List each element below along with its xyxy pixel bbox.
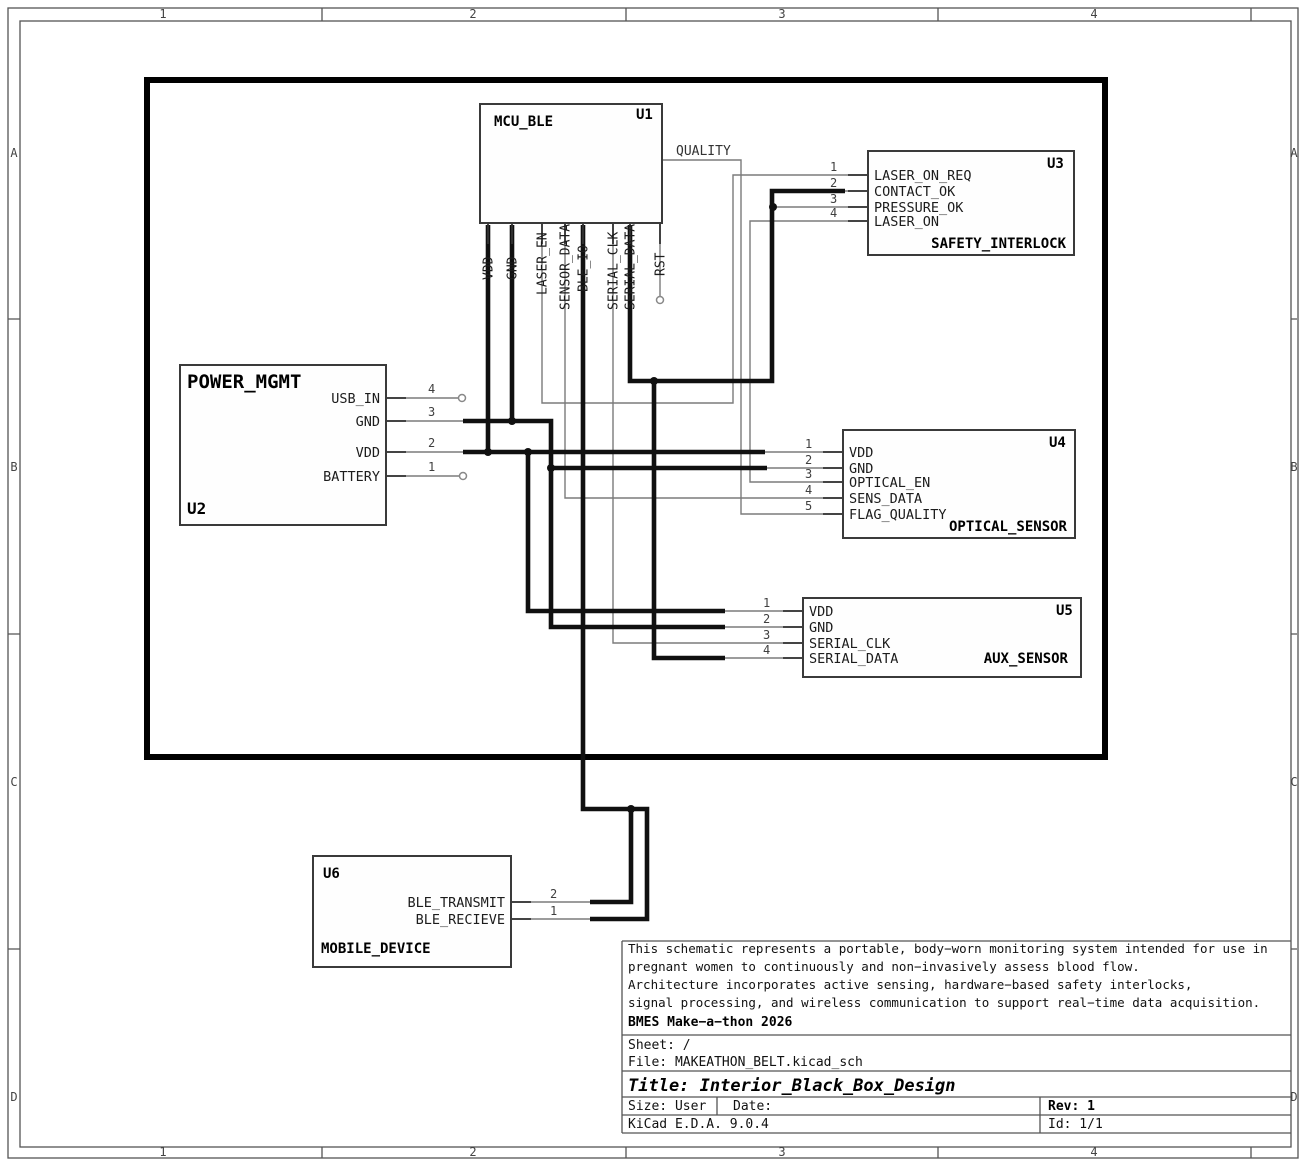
frame-col-label: 1	[159, 1145, 166, 1159]
pin-label-vdd: VDD	[809, 604, 833, 620]
pin-label-serial-data: SERIAL_DATA	[809, 651, 898, 667]
pin-label-vdd: VDD	[849, 445, 873, 461]
component-value: AUX_SENSOR	[984, 651, 1069, 667]
comment-line: Architecture incorporates active sensing…	[628, 977, 1192, 992]
pin-label-ble-io: BLE_IO	[577, 245, 592, 292]
rev-field: Rev: 1	[1048, 1099, 1095, 1114]
pin-label-usb-in: USB_IN	[331, 391, 380, 407]
pin-label-sens-data: SENS_DATA	[849, 491, 922, 507]
frame-row-label: D	[10, 1090, 17, 1104]
frame-col-label: 4	[1090, 7, 1097, 21]
pin-number: 2	[830, 176, 837, 190]
pin-number: 2	[763, 612, 770, 626]
pin-number: 3	[805, 467, 812, 481]
frame-row-label: C	[1290, 775, 1297, 789]
component-value: MCU_BLE	[494, 114, 553, 130]
pin-number: 4	[763, 643, 770, 657]
title-block: This schematic represents a portable, bo…	[622, 941, 1291, 1133]
pin-number: 1	[805, 437, 812, 451]
kicad-schematic-sheet: 1 2 3 4 1 2 3 4 A B C D A B C D	[0, 0, 1305, 1167]
frame-col-label: 3	[778, 1145, 785, 1159]
frame-row-label: B	[10, 460, 17, 474]
frame-col-label: 3	[778, 7, 785, 21]
tool-field: KiCad E.D.A. 9.0.4	[628, 1117, 769, 1132]
component-ref: U1	[636, 107, 653, 123]
comment-line: signal processing, and wireless communic…	[628, 995, 1260, 1010]
pin-number: 4	[830, 206, 837, 220]
sheet-field: Sheet: /	[628, 1038, 691, 1053]
frame-col-label: 2	[469, 1145, 476, 1159]
pin-number: 3	[428, 405, 435, 419]
pin-label-optical-en: OPTICAL_EN	[849, 475, 930, 491]
size-field: Size: User	[628, 1099, 706, 1114]
pin-label-vdd: VDD	[356, 445, 380, 461]
component-u5-aux-sensor: U5 AUX_SENSOR VDD GND SERIAL_CLK SERIAL_…	[763, 596, 1081, 677]
frame-col-label: 4	[1090, 1145, 1097, 1159]
pin-label-ble-recieve: BLE_RECIEVE	[416, 912, 505, 928]
pin-number: 2	[428, 436, 435, 450]
component-ref: U2	[187, 499, 206, 518]
file-field: File: MAKEATHON_BELT.kicad_sch	[628, 1055, 863, 1070]
component-u4-optical-sensor: U4 OPTICAL_SENSOR VDD GND OPTICAL_EN SEN…	[805, 430, 1075, 538]
pin-label-vdd: VDD	[482, 256, 497, 280]
no-connect-battery	[460, 473, 467, 480]
frame-row-label: A	[1290, 146, 1298, 160]
wire-ble-net	[583, 225, 647, 919]
pin-label-serial-data: SERIAL_DATA	[624, 224, 639, 310]
pin-number: 4	[805, 483, 812, 497]
wire-u4-stubs	[765, 452, 843, 468]
project-name: BMES Make−a−thon 2026	[628, 1015, 793, 1030]
wire-serial-clk	[613, 223, 803, 643]
component-u3-safety-interlock: U3 SAFETY_INTERLOCK LASER_ON_REQ CONTACT…	[830, 151, 1074, 255]
date-field: Date:	[733, 1099, 772, 1114]
frame-col-label: 1	[159, 7, 166, 21]
title-field: Title: Interior_Black_Box_Design	[628, 1076, 956, 1096]
frame-col-label: 2	[469, 7, 476, 21]
pin-number: 5	[805, 499, 812, 513]
component-ref: U4	[1049, 435, 1066, 451]
pin-label-flag-quality: FLAG_QUALITY	[849, 507, 947, 523]
frame-row-label: A	[10, 146, 18, 160]
comment-line: pregnant women to continuously and non−i…	[628, 959, 1140, 974]
component-value: OPTICAL_SENSOR	[949, 519, 1068, 535]
pin-number: 4	[428, 382, 435, 396]
pin-label-gnd: GND	[809, 620, 833, 636]
frame-row-label: B	[1290, 460, 1297, 474]
pin-number: 1	[830, 160, 837, 174]
component-value: SAFETY_INTERLOCK	[931, 236, 1066, 252]
no-connect-usb-in	[459, 395, 466, 402]
frame-row-label: D	[1290, 1090, 1297, 1104]
wire-vdd-net	[463, 452, 765, 611]
pin-label-ble-transmit: BLE_TRANSMIT	[407, 895, 505, 911]
pin-label-contact-ok: CONTACT_OK	[874, 184, 956, 200]
pin-number: 2	[805, 453, 812, 467]
pin-label-rst: RST	[654, 252, 669, 276]
component-u1-mcu-ble: MCU_BLE U1 VDD GND LASER_EN SENSOR_DATA …	[480, 104, 669, 310]
pin-label-serial-clk: SERIAL_CLK	[809, 636, 891, 652]
comment-line: This schematic represents a portable, bo…	[628, 941, 1268, 956]
pin-label-sensor-data: SENSOR_DATA	[559, 224, 574, 310]
net-label-quality: QUALITY	[676, 144, 731, 159]
component-ref: U6	[323, 866, 340, 882]
component-value: POWER_MGMT	[187, 371, 301, 393]
pin-number: 1	[763, 596, 770, 610]
pin-label-laser-en: LASER_EN	[536, 232, 551, 295]
id-field: Id: 1/1	[1048, 1117, 1103, 1132]
pin-number: 3	[763, 628, 770, 642]
component-u2-power-mgmt: POWER_MGMT U2 USB_IN GND VDD BATTERY 4 3…	[180, 365, 435, 525]
component-u6-mobile-device: U6 MOBILE_DEVICE BLE_TRANSMIT BLE_RECIEV…	[313, 856, 557, 967]
thick-wires	[463, 191, 845, 919]
frame-row-label: C	[10, 775, 17, 789]
component-value: MOBILE_DEVICE	[321, 941, 431, 957]
schematic-canvas: 1 2 3 4 1 2 3 4 A B C D A B C D	[0, 0, 1305, 1167]
component-ref: U3	[1047, 156, 1064, 172]
wire-quality	[662, 160, 843, 514]
pin-label-gnd: GND	[506, 256, 521, 280]
no-connect-rst	[657, 297, 664, 304]
pin-number: 1	[428, 460, 435, 474]
pin-number: 1	[550, 904, 557, 918]
pin-label-laser-on-req: LASER_ON_REQ	[874, 168, 972, 184]
component-ref: U5	[1056, 603, 1073, 619]
wire-u3-stubs	[773, 191, 868, 207]
pin-number: 3	[830, 192, 837, 206]
pin-label-battery: BATTERY	[323, 469, 380, 485]
pin-label-gnd: GND	[356, 414, 380, 430]
pin-label-laser-on: LASER_ON	[874, 214, 939, 230]
pin-label-serial-clk: SERIAL_CLK	[607, 232, 622, 310]
pin-number: 2	[550, 887, 557, 901]
